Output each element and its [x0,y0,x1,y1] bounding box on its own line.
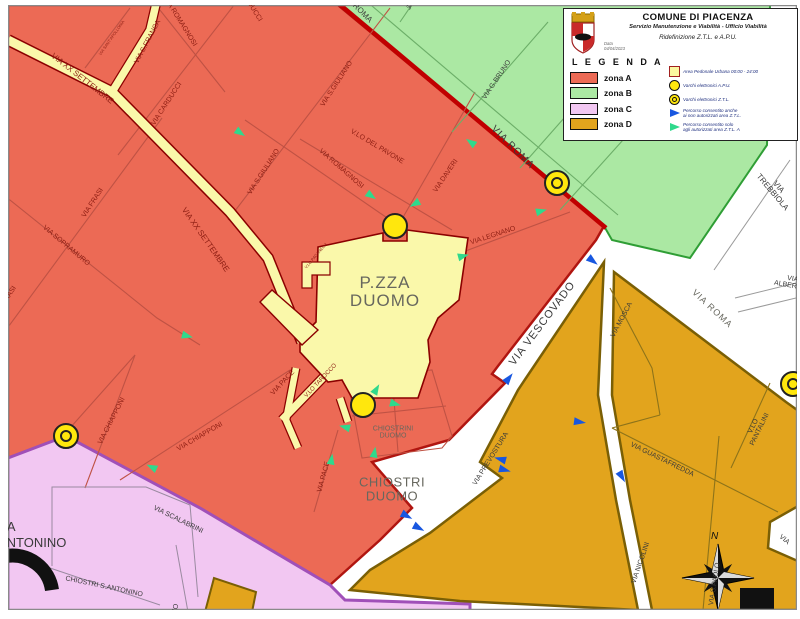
legend-zone-list: zona Azona Bzona Czona D [570,70,632,132]
legend-zone-row: zona D [570,117,632,133]
zone-label: zona A [604,73,632,83]
legend-symbol-list: Area Pedonale Urbana 00:00 - 24:00Varchi… [666,66,794,135]
legend-header: COMUNE DI PIACENZA Servizio Manutenzione… [602,12,794,41]
legend-panel: COMUNE DI PIACENZA Servizio Manutenzione… [563,8,798,141]
arrow-blue-icon [670,109,680,117]
route-arrow-green [326,452,336,464]
legend-title: COMUNE DI PIACENZA [602,12,794,23]
varco-apu-marker [382,213,408,239]
legend-date: Data 04/04/2023 [604,41,625,51]
route-arrow-green [369,445,379,457]
varco-apu-marker [350,392,376,418]
zone-color-swatch [570,87,598,99]
legend-zone-row: zona C [570,101,632,117]
zone-color-swatch [570,118,598,130]
ztl-map-page: VIA XX SETTEMBREVIA XX SETTEMBREVIA S.FR… [0,0,800,619]
legend-symbol-label: Percorso consentito solo agli autorizzat… [683,122,740,133]
legend-symbol-label: Percorso consentito anche ai non autoriz… [683,108,741,119]
zone-label: zona D [604,119,632,129]
zone-label: zona C [604,104,632,114]
varco-ztl-inner-dot [60,430,72,442]
legend-symbol-label: Area Pedonale Urbana 00:00 - 24:00 [683,69,758,74]
zone-color-swatch [570,103,598,115]
legend-symbol-row: Varchi elettronici Z.T.L. [666,94,794,105]
city-crest-icon [568,12,600,56]
legend-symbol-label: Varchi elettronici Z.T.L. [683,97,730,102]
zone-d-area-east [612,272,797,610]
legend-date-value: 04/04/2023 [604,46,625,51]
varco-ztl-marker [544,170,570,196]
apu-area-icon [669,66,680,77]
legend-symbol-row: Percorso consentito anche ai non autoriz… [666,108,794,119]
legend-symbol-label: Varchi elettronici A.P.U. [683,83,731,88]
legend-symbol-row: Varchi elettronici A.P.U. [666,80,794,91]
varco-ztl-icon [669,94,680,105]
zone-color-swatch [570,72,598,84]
varco-ztl-inner-dot [551,177,563,189]
varco-ztl-inner-dot [787,378,797,390]
legend-heading: L E G E N D A [572,57,663,67]
legend-symbol-row: Area Pedonale Urbana 00:00 - 24:00 [666,66,794,77]
varco-ztl-marker [53,423,79,449]
zone-label: zona B [604,88,632,98]
legend-zone-row: zona A [570,70,632,86]
legend-symbol-row: Percorso consentito solo agli autorizzat… [666,122,794,133]
route-arrow-blue [573,417,586,427]
legend-doc-title: Ridefinizione Z.T.L. e A.P.U. [602,34,794,41]
arrow-green-icon [670,123,680,131]
compass-north-label: N [711,531,718,542]
varco-apu-icon [669,80,680,91]
legend-zone-row: zona B [570,86,632,102]
legend-subtitle: Servizio Manutenzione e Viabilità - Uffi… [602,24,794,30]
